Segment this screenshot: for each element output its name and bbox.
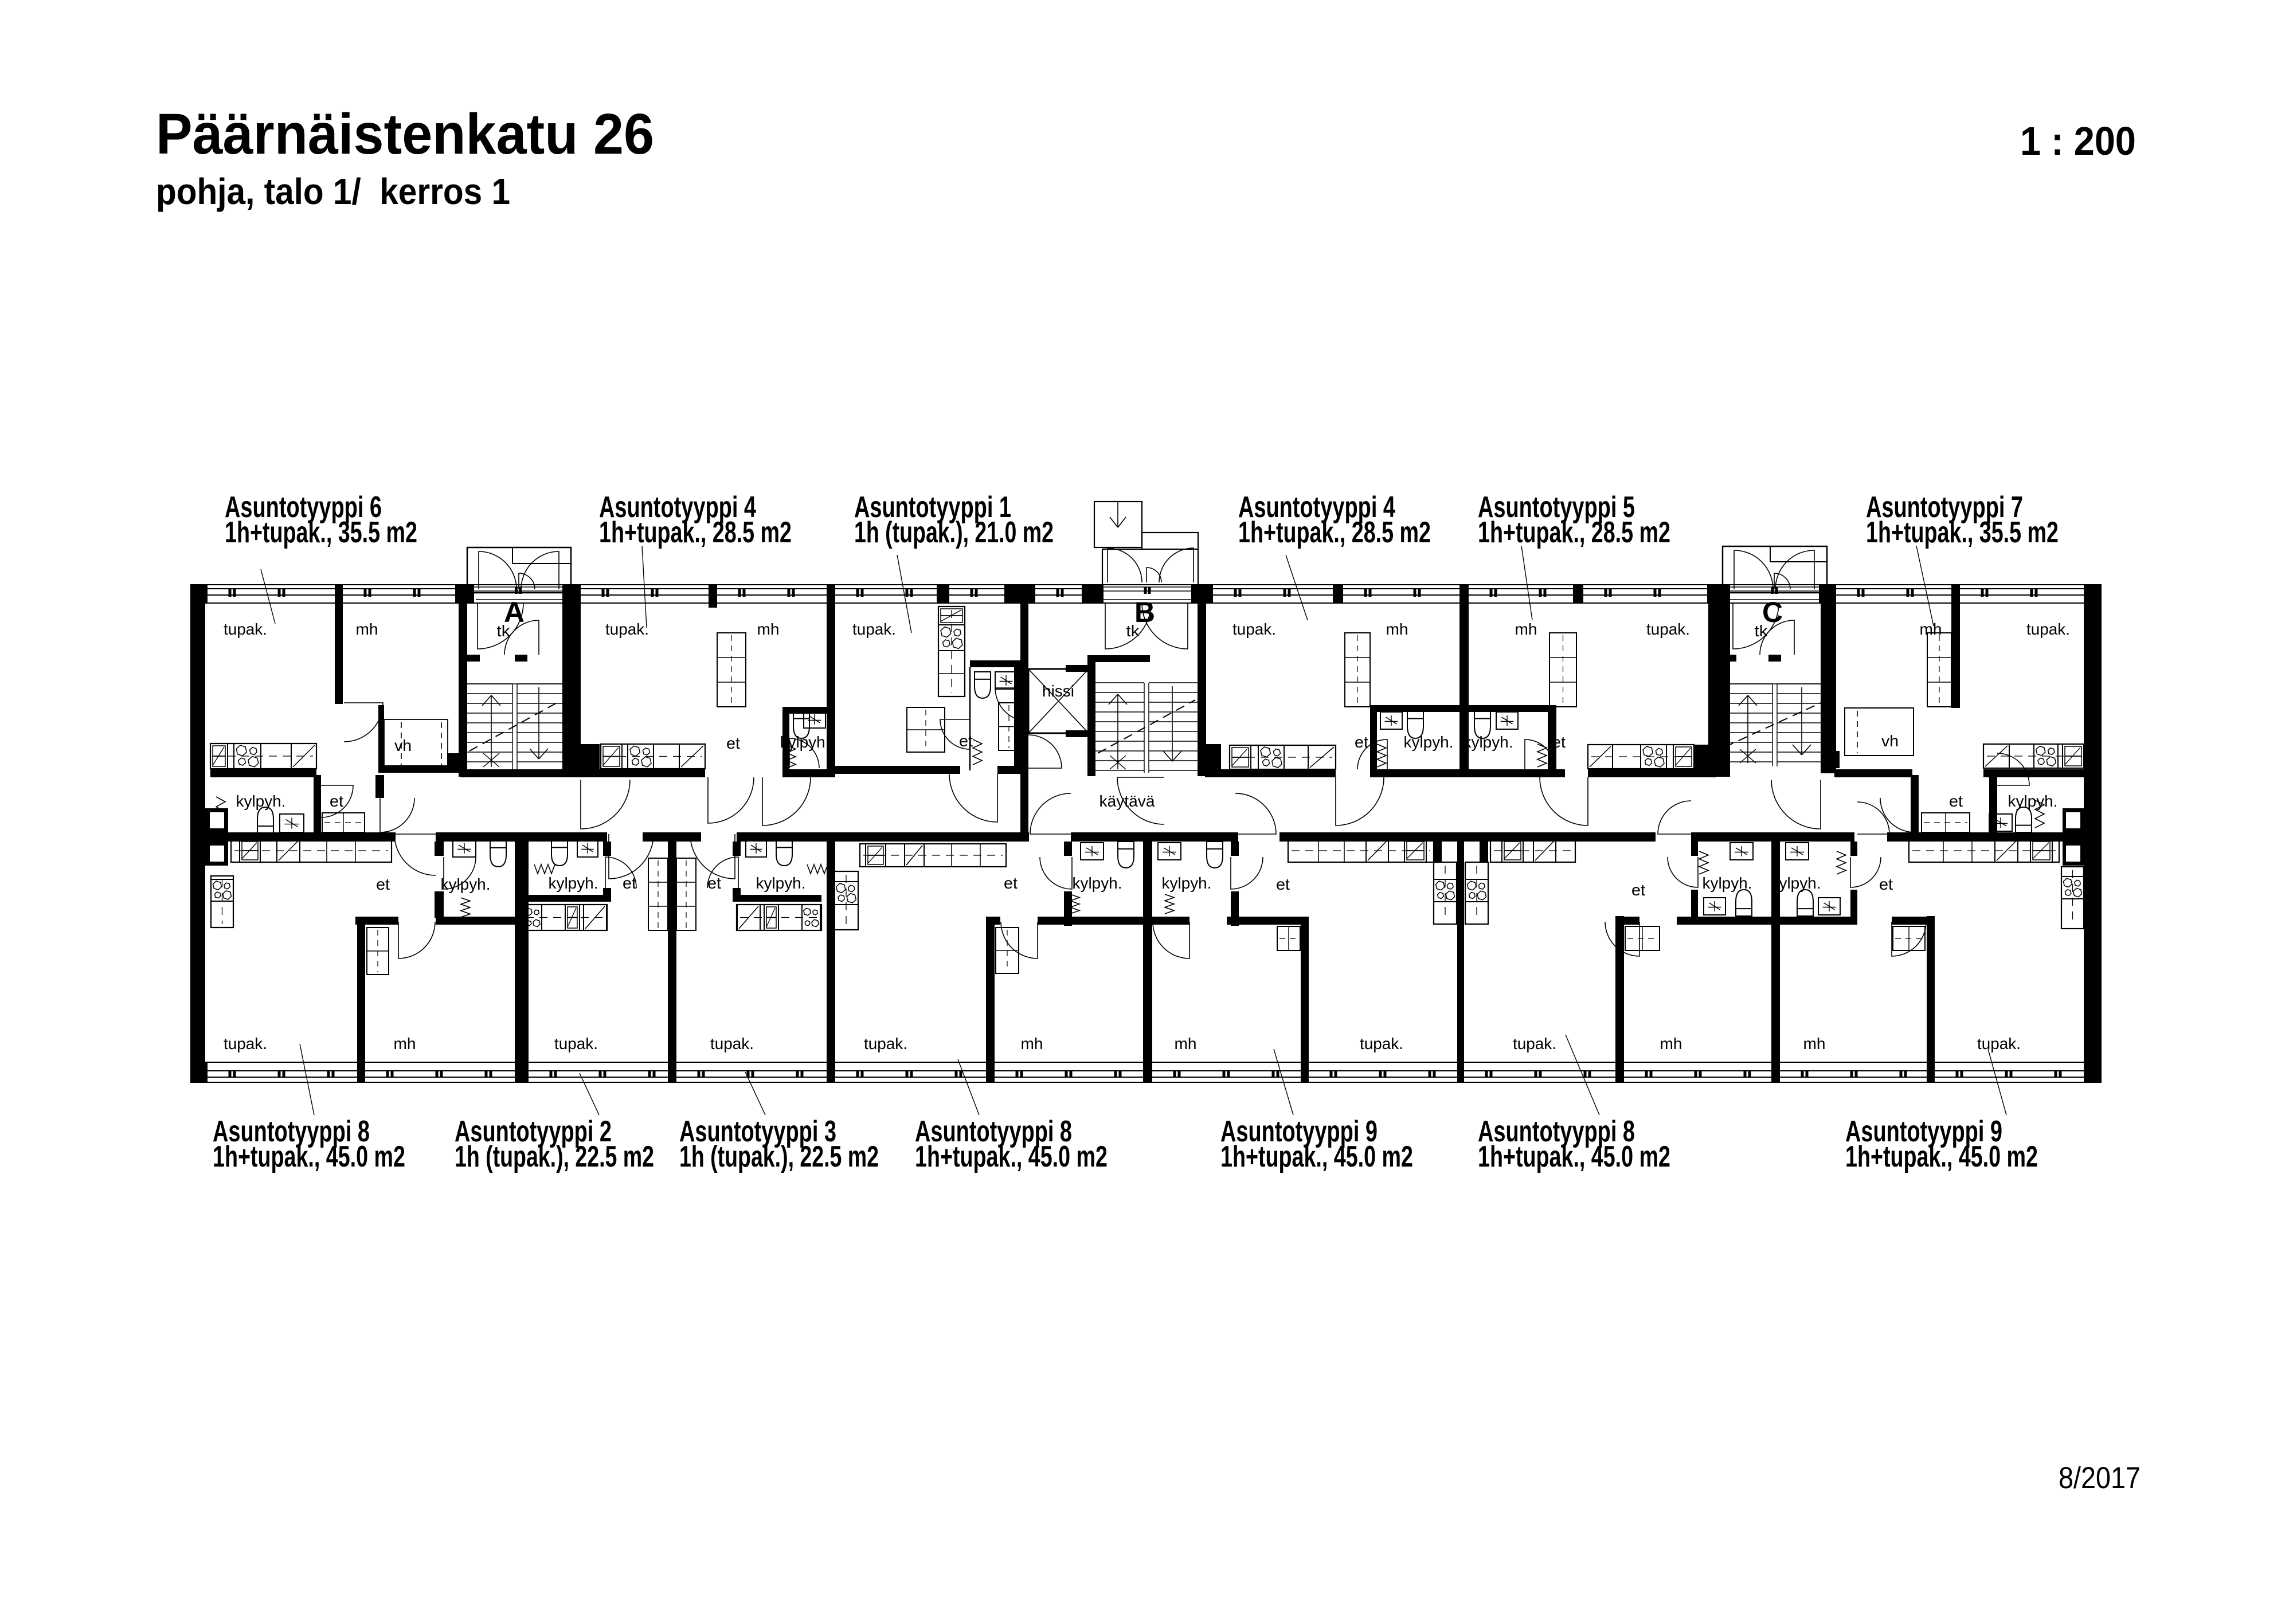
svg-text:tupak.: tupak. bbox=[1232, 620, 1276, 638]
svg-text:kylpyh.: kylpyh. bbox=[1162, 874, 1212, 892]
svg-text:et: et bbox=[1276, 875, 1290, 893]
svg-text:1h+tupak., 45.0 m2: 1h+tupak., 45.0 m2 bbox=[213, 1140, 405, 1173]
svg-text:tk: tk bbox=[1755, 622, 1768, 640]
svg-text:et: et bbox=[1631, 881, 1645, 899]
svg-text:et: et bbox=[1004, 874, 1018, 892]
svg-text:1h+tupak., 35.5 m2: 1h+tupak., 35.5 m2 bbox=[1866, 516, 2059, 549]
svg-text:tupak.: tupak. bbox=[554, 1035, 598, 1052]
svg-text:kylpyh.: kylpyh. bbox=[756, 874, 806, 892]
svg-text:kylpyh.: kylpyh. bbox=[1404, 733, 1454, 751]
svg-text:vh: vh bbox=[394, 737, 412, 754]
svg-text:kylpyh.: kylpyh. bbox=[549, 874, 598, 892]
svg-text:mh: mh bbox=[1386, 620, 1408, 638]
svg-text:1h+tupak., 28.5 m2: 1h+tupak., 28.5 m2 bbox=[599, 516, 792, 549]
svg-text:1h+tupak., 45.0 m2: 1h+tupak., 45.0 m2 bbox=[915, 1140, 1108, 1173]
svg-text:8/2017: 8/2017 bbox=[2059, 1461, 2141, 1495]
svg-text:tupak.: tupak. bbox=[224, 1035, 267, 1052]
svg-text:1h+tupak., 45.0 m2: 1h+tupak., 45.0 m2 bbox=[1845, 1140, 2038, 1173]
svg-text:tupak.: tupak. bbox=[1977, 1035, 2021, 1052]
svg-text:mh: mh bbox=[757, 620, 780, 638]
svg-text:tupak.: tupak. bbox=[2026, 620, 2070, 638]
svg-text:tupak.: tupak. bbox=[1513, 1035, 1556, 1052]
svg-text:et: et bbox=[330, 792, 343, 810]
svg-text:1h (tupak.), 22.5 m2: 1h (tupak.), 22.5 m2 bbox=[679, 1140, 879, 1173]
svg-text:kylpyh.: kylpyh. bbox=[441, 875, 491, 893]
svg-text:kylpyh.: kylpyh. bbox=[1771, 874, 1821, 892]
svg-text:et: et bbox=[726, 734, 740, 752]
svg-text:mh: mh bbox=[356, 620, 378, 638]
svg-text:kylpyh.: kylpyh. bbox=[2008, 792, 2058, 810]
svg-text:mh: mh bbox=[1920, 620, 1942, 638]
svg-text:1h+tupak., 45.0 m2: 1h+tupak., 45.0 m2 bbox=[1220, 1140, 1413, 1173]
svg-text:mh: mh bbox=[1021, 1035, 1043, 1052]
svg-text:tupak.: tupak. bbox=[864, 1035, 907, 1052]
svg-text:kylpyh.: kylpyh. bbox=[1073, 874, 1122, 892]
svg-text:et: et bbox=[1949, 792, 1963, 810]
svg-text:tupak.: tupak. bbox=[852, 620, 896, 638]
svg-text:tupak.: tupak. bbox=[1360, 1035, 1403, 1052]
svg-text:1h+tupak., 45.0 m2: 1h+tupak., 45.0 m2 bbox=[1478, 1140, 1670, 1173]
svg-text:Päärnäistenkatu 26: Päärnäistenkatu 26 bbox=[156, 102, 654, 166]
svg-text:tupak.: tupak. bbox=[710, 1035, 754, 1052]
svg-text:1h (tupak.), 21.0 m2: 1h (tupak.), 21.0 m2 bbox=[854, 516, 1054, 549]
svg-text:vh: vh bbox=[1881, 732, 1899, 750]
svg-text:mh: mh bbox=[1660, 1035, 1682, 1052]
svg-text:mh: mh bbox=[1515, 620, 1537, 638]
svg-text:pohja, talo 1/ kerros 1: pohja, talo 1/ kerros 1 bbox=[156, 171, 510, 212]
svg-text:käytävä: käytävä bbox=[1099, 792, 1155, 810]
svg-text:kylpyh.: kylpyh. bbox=[236, 792, 286, 810]
svg-text:tk: tk bbox=[1126, 622, 1140, 640]
svg-text:tupak.: tupak. bbox=[224, 620, 267, 638]
svg-text:et: et bbox=[376, 875, 390, 893]
svg-text:et: et bbox=[1879, 875, 1893, 893]
svg-text:1 : 200: 1 : 200 bbox=[2020, 119, 2136, 163]
svg-text:et: et bbox=[959, 732, 973, 750]
svg-text:mh: mh bbox=[394, 1035, 416, 1052]
svg-text:mh: mh bbox=[1803, 1035, 1826, 1052]
svg-text:1h+tupak., 28.5 m2: 1h+tupak., 28.5 m2 bbox=[1478, 516, 1670, 549]
svg-text:et: et bbox=[1552, 733, 1566, 751]
svg-text:1h+tupak., 28.5 m2: 1h+tupak., 28.5 m2 bbox=[1238, 516, 1431, 549]
svg-text:1h (tupak.), 22.5 m2: 1h (tupak.), 22.5 m2 bbox=[455, 1140, 654, 1173]
svg-text:1h+tupak., 35.5 m2: 1h+tupak., 35.5 m2 bbox=[225, 516, 417, 549]
svg-text:tupak.: tupak. bbox=[605, 620, 649, 638]
svg-text:hissi: hissi bbox=[1042, 682, 1074, 700]
svg-text:mh: mh bbox=[1175, 1035, 1197, 1052]
svg-text:tupak.: tupak. bbox=[1646, 620, 1690, 638]
